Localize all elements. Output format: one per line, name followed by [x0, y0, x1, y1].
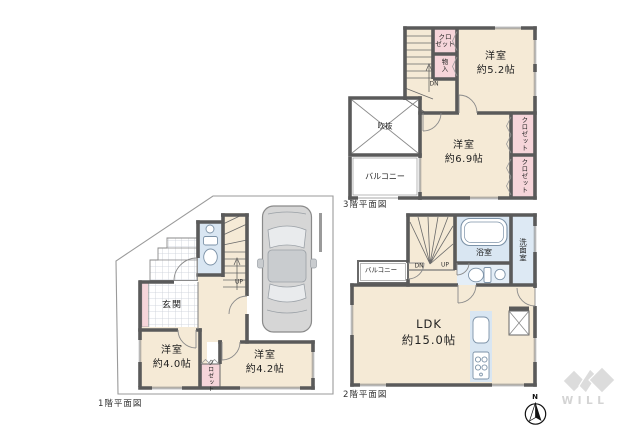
stairs-down-label-3f: DN: [429, 80, 438, 87]
floorplan-page: クロ ゼット 物 入 DN 洋室 約5.2帖 吹抜 バルコニー 洋室 約6.9帖…: [0, 0, 640, 427]
closet-right-upper-label: クロゼット: [519, 117, 527, 152]
closet-right-lower-label: クロゼット: [519, 159, 527, 194]
storage-cross-2f: [509, 307, 529, 336]
stairs-up-label-1f: UP: [235, 278, 243, 285]
washroom-label: 洗面室: [519, 238, 528, 262]
will-logo-text: WILL: [562, 395, 609, 407]
floorplan-graphics: [0, 0, 640, 427]
will-logo-mark: [563, 367, 615, 393]
bedroom52-size: 約5.2帖: [477, 65, 515, 77]
bedroom69-size: 約6.9帖: [445, 154, 483, 166]
balcony-label-3f: バルコニー: [365, 172, 405, 182]
entrance-label: 玄関: [162, 301, 182, 312]
bedroom52-name: 洋室: [485, 51, 507, 63]
bedroom40-size: 約4.0帖: [153, 359, 191, 371]
bedroom42-size: 約4.2帖: [246, 364, 284, 376]
compass: [525, 403, 545, 425]
storage-label-3f: 物 入: [442, 59, 449, 73]
bedroom69-name: 洋室: [453, 140, 475, 152]
closet-label-1f: クロゼット: [206, 360, 213, 393]
floor1-caption: 1階平面図: [98, 397, 142, 409]
stairs-down-label-2f: DN: [414, 262, 423, 269]
ldk-size: 約15.0帖: [402, 334, 457, 348]
floor2-plan: [350, 213, 537, 387]
closet-label-3f: クロ ゼット: [435, 34, 455, 48]
floor3-caption: 3階平面図: [343, 198, 387, 210]
balcony-label-2f: バルコニー: [365, 267, 397, 275]
floor2-caption: 2階平面図: [343, 388, 387, 400]
car: [258, 206, 317, 332]
stairs-up-label-2f: UP: [441, 261, 449, 268]
floor1-plan: [116, 196, 333, 394]
void-label: 吹抜: [378, 122, 393, 131]
ldk-name: LDK: [416, 318, 442, 332]
bath-label: 浴室: [476, 248, 492, 258]
bedroom40-name: 洋室: [161, 345, 183, 357]
bedroom42-name: 洋室: [254, 350, 276, 362]
north-label: N: [532, 393, 538, 401]
bathtub: [461, 219, 507, 246]
